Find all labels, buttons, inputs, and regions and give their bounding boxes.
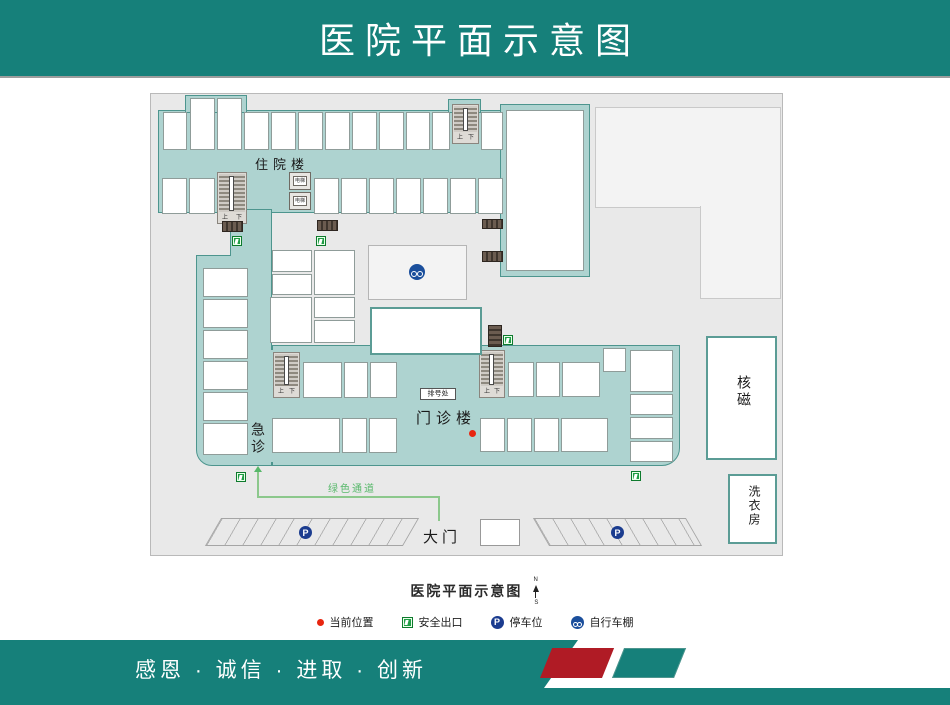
page-title: 医院平面示意图: [309, 12, 641, 64]
room: [203, 330, 248, 359]
parking-icon: P: [611, 526, 624, 539]
legend-label: 安全出口: [419, 614, 463, 630]
plan-caption: 医院平面示意图: [410, 581, 522, 601]
ticket-office-box: 排号处: [420, 388, 456, 400]
room: [272, 274, 312, 295]
room: [630, 441, 673, 462]
room: [314, 297, 355, 318]
caption-row: 医院平面示意图 N S: [0, 578, 950, 604]
hospital-plan-poster: 医院平面示意图: [0, 0, 950, 705]
bench: [222, 221, 243, 232]
room: [217, 98, 242, 150]
bench: [488, 325, 502, 347]
current-position-dot-icon: [317, 619, 324, 626]
room: [423, 178, 448, 214]
room: [203, 361, 248, 390]
legend-item-parking: P 停车位: [491, 614, 543, 630]
bike-shed-icon: [571, 616, 584, 629]
current-position-dot: [469, 430, 476, 437]
compass-arrow-head: [533, 585, 539, 592]
room: [314, 178, 339, 214]
compass-arrow-stem: [535, 592, 536, 598]
green-channel-line: [438, 496, 440, 521]
compass-south: S: [534, 600, 538, 606]
mri-label: 核磁: [734, 375, 754, 409]
staircase: 上下: [217, 172, 247, 224]
stairs-up-label: 上: [484, 389, 490, 395]
room: [271, 112, 296, 150]
room: [478, 178, 503, 214]
elevator-label: 电梯: [295, 199, 305, 204]
staircase: 上下: [479, 350, 505, 398]
elevator-label: 电梯: [295, 179, 305, 184]
room: [432, 112, 450, 150]
green-channel-line: [257, 496, 440, 498]
bench: [317, 220, 338, 231]
room: [481, 112, 503, 150]
legend-label: 停车位: [510, 614, 543, 630]
footer-teal-parallelogram: [612, 648, 686, 678]
room: [630, 417, 673, 439]
parking-letter: P: [614, 528, 620, 538]
staircase: 上下: [452, 104, 479, 144]
room: [203, 423, 248, 455]
staircase: 上下: [273, 352, 300, 398]
room: [341, 178, 367, 214]
slogan-text: 感恩 · 诚信 · 进取 · 创新: [135, 654, 427, 684]
bench: [482, 251, 503, 262]
safety-exit-icon: [402, 617, 413, 628]
bike-shed-icon: [409, 264, 425, 280]
green-channel-label: 绿色通道: [328, 480, 376, 495]
inpatient-label: 住院楼: [255, 154, 309, 173]
elevator: 电梯: [289, 192, 311, 210]
building-block-topright-lower: [700, 206, 781, 299]
legend-item-current-position: 当前位置: [317, 614, 374, 630]
room: [298, 112, 323, 150]
room: [561, 418, 608, 452]
footer-red-parallelogram: [540, 648, 614, 678]
room: [325, 112, 350, 150]
room: [303, 362, 342, 398]
parking-letter: P: [302, 528, 308, 538]
room: [314, 250, 355, 295]
compass-north: N: [534, 577, 538, 583]
room: [244, 112, 269, 150]
outpatient-label: 门诊楼: [416, 407, 476, 428]
room: [379, 112, 404, 150]
room: [630, 394, 673, 415]
emergency-label: 急诊: [248, 422, 268, 456]
room: [507, 418, 532, 452]
room: [369, 418, 397, 453]
safety-exit-icon: [631, 471, 641, 481]
room: [189, 178, 215, 214]
parking-icon: P: [299, 526, 312, 539]
room: [162, 178, 187, 214]
laundry-label: 洗衣房: [746, 485, 763, 527]
room: [344, 362, 368, 398]
room: [203, 268, 248, 297]
room: [450, 178, 476, 214]
parking-letter: P: [494, 617, 500, 627]
stairs-down-label: 下: [494, 389, 500, 395]
room: [270, 297, 312, 343]
room: [203, 392, 248, 421]
room: [163, 112, 187, 150]
compass-icon: N S: [532, 575, 539, 608]
corridor-joint: [231, 253, 271, 258]
header-bar: 医院平面示意图: [0, 0, 950, 78]
room: [562, 362, 600, 397]
stair-rail: [229, 176, 234, 211]
safety-exit-icon: [316, 236, 326, 246]
gate-box: [480, 519, 520, 546]
room: [406, 112, 430, 150]
green-channel-line: [257, 472, 259, 498]
ticket-office-label: 排号处: [428, 391, 449, 398]
room: [190, 98, 215, 150]
stairs-down-label: 下: [468, 135, 474, 141]
main-gate-label: 大门: [423, 526, 461, 547]
safety-exit-icon: [503, 335, 513, 345]
stair-rail: [463, 108, 468, 131]
room: [630, 350, 673, 392]
room: [352, 112, 377, 150]
safety-exit-icon: [232, 236, 242, 246]
room: [536, 362, 560, 397]
stair-rail: [284, 356, 289, 385]
tall-room: [506, 110, 584, 271]
room: [480, 418, 505, 452]
room: [603, 348, 626, 372]
parking-strip-left: [205, 518, 419, 546]
legend-item-safety-exit: 安全出口: [402, 614, 463, 630]
safety-exit-icon: [236, 472, 246, 482]
room: [508, 362, 534, 397]
stairs-down-label: 下: [289, 389, 295, 395]
room: [272, 250, 312, 272]
legend: 当前位置 安全出口 P 停车位 自行车棚: [0, 612, 950, 632]
bench: [482, 219, 503, 229]
legend-label: 当前位置: [330, 614, 374, 630]
room: [369, 178, 394, 214]
stairs-up-label: 上: [457, 135, 463, 141]
room: [534, 418, 559, 452]
legend-item-bike-shed: 自行车棚: [571, 614, 634, 630]
room: [342, 418, 367, 453]
footer-strip: [0, 688, 950, 705]
room: [314, 320, 355, 343]
stairs-up-label: 上: [278, 389, 284, 395]
room: [370, 362, 397, 398]
room: [396, 178, 421, 214]
stair-rail: [489, 354, 494, 385]
building-block-topright: [595, 107, 781, 208]
room: [272, 418, 340, 453]
legend-label: 自行车棚: [590, 614, 634, 630]
room: [203, 299, 248, 328]
outpatient-hall: [370, 307, 482, 355]
elevator: 电梯: [289, 172, 311, 190]
parking-icon: P: [491, 616, 504, 629]
